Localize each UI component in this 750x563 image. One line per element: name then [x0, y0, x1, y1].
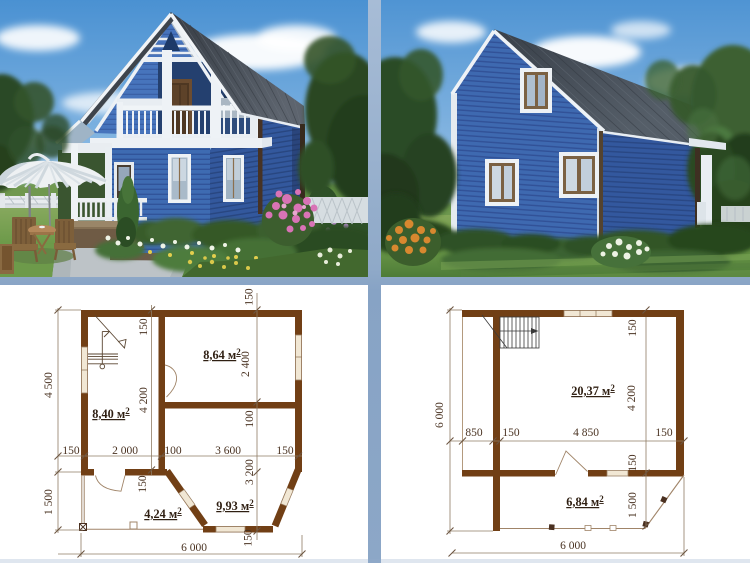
svg-text:2 000: 2 000: [112, 445, 138, 457]
svg-text:150: 150: [62, 445, 80, 457]
svg-text:6 000: 6 000: [434, 402, 446, 428]
svg-text:150: 150: [502, 427, 520, 439]
svg-text:8,40 м2: 8,40 м2: [92, 406, 130, 421]
svg-text:100: 100: [164, 445, 182, 457]
svg-text:8,64 м2: 8,64 м2: [203, 347, 241, 362]
svg-text:4 200: 4 200: [138, 387, 150, 413]
svg-text:4 200: 4 200: [626, 385, 638, 411]
svg-text:150: 150: [627, 319, 639, 337]
svg-text:6 000: 6 000: [181, 542, 207, 554]
svg-text:850: 850: [465, 427, 483, 439]
svg-text:3 600: 3 600: [215, 445, 241, 457]
svg-text:150: 150: [243, 529, 255, 547]
svg-text:150: 150: [627, 454, 639, 472]
svg-text:9,93 м2: 9,93 м2: [216, 498, 254, 513]
svg-text:2 400: 2 400: [240, 351, 252, 377]
svg-text:150: 150: [244, 288, 256, 306]
svg-text:4 500: 4 500: [43, 372, 55, 398]
svg-text:20,37 м2: 20,37 м2: [571, 383, 615, 398]
svg-text:150: 150: [137, 475, 149, 493]
svg-text:4,24 м2: 4,24 м2: [144, 506, 182, 521]
svg-text:3 200: 3 200: [244, 459, 256, 485]
svg-text:6 000: 6 000: [560, 540, 586, 552]
svg-text:150: 150: [138, 318, 150, 336]
svg-text:150: 150: [276, 445, 294, 457]
svg-text:4 850: 4 850: [573, 427, 599, 439]
svg-text:150: 150: [655, 427, 673, 439]
svg-text:100: 100: [244, 410, 256, 428]
svg-text:1 500: 1 500: [43, 489, 55, 515]
svg-text:6,84 м2: 6,84 м2: [566, 494, 604, 509]
svg-text:1 500: 1 500: [627, 492, 639, 518]
